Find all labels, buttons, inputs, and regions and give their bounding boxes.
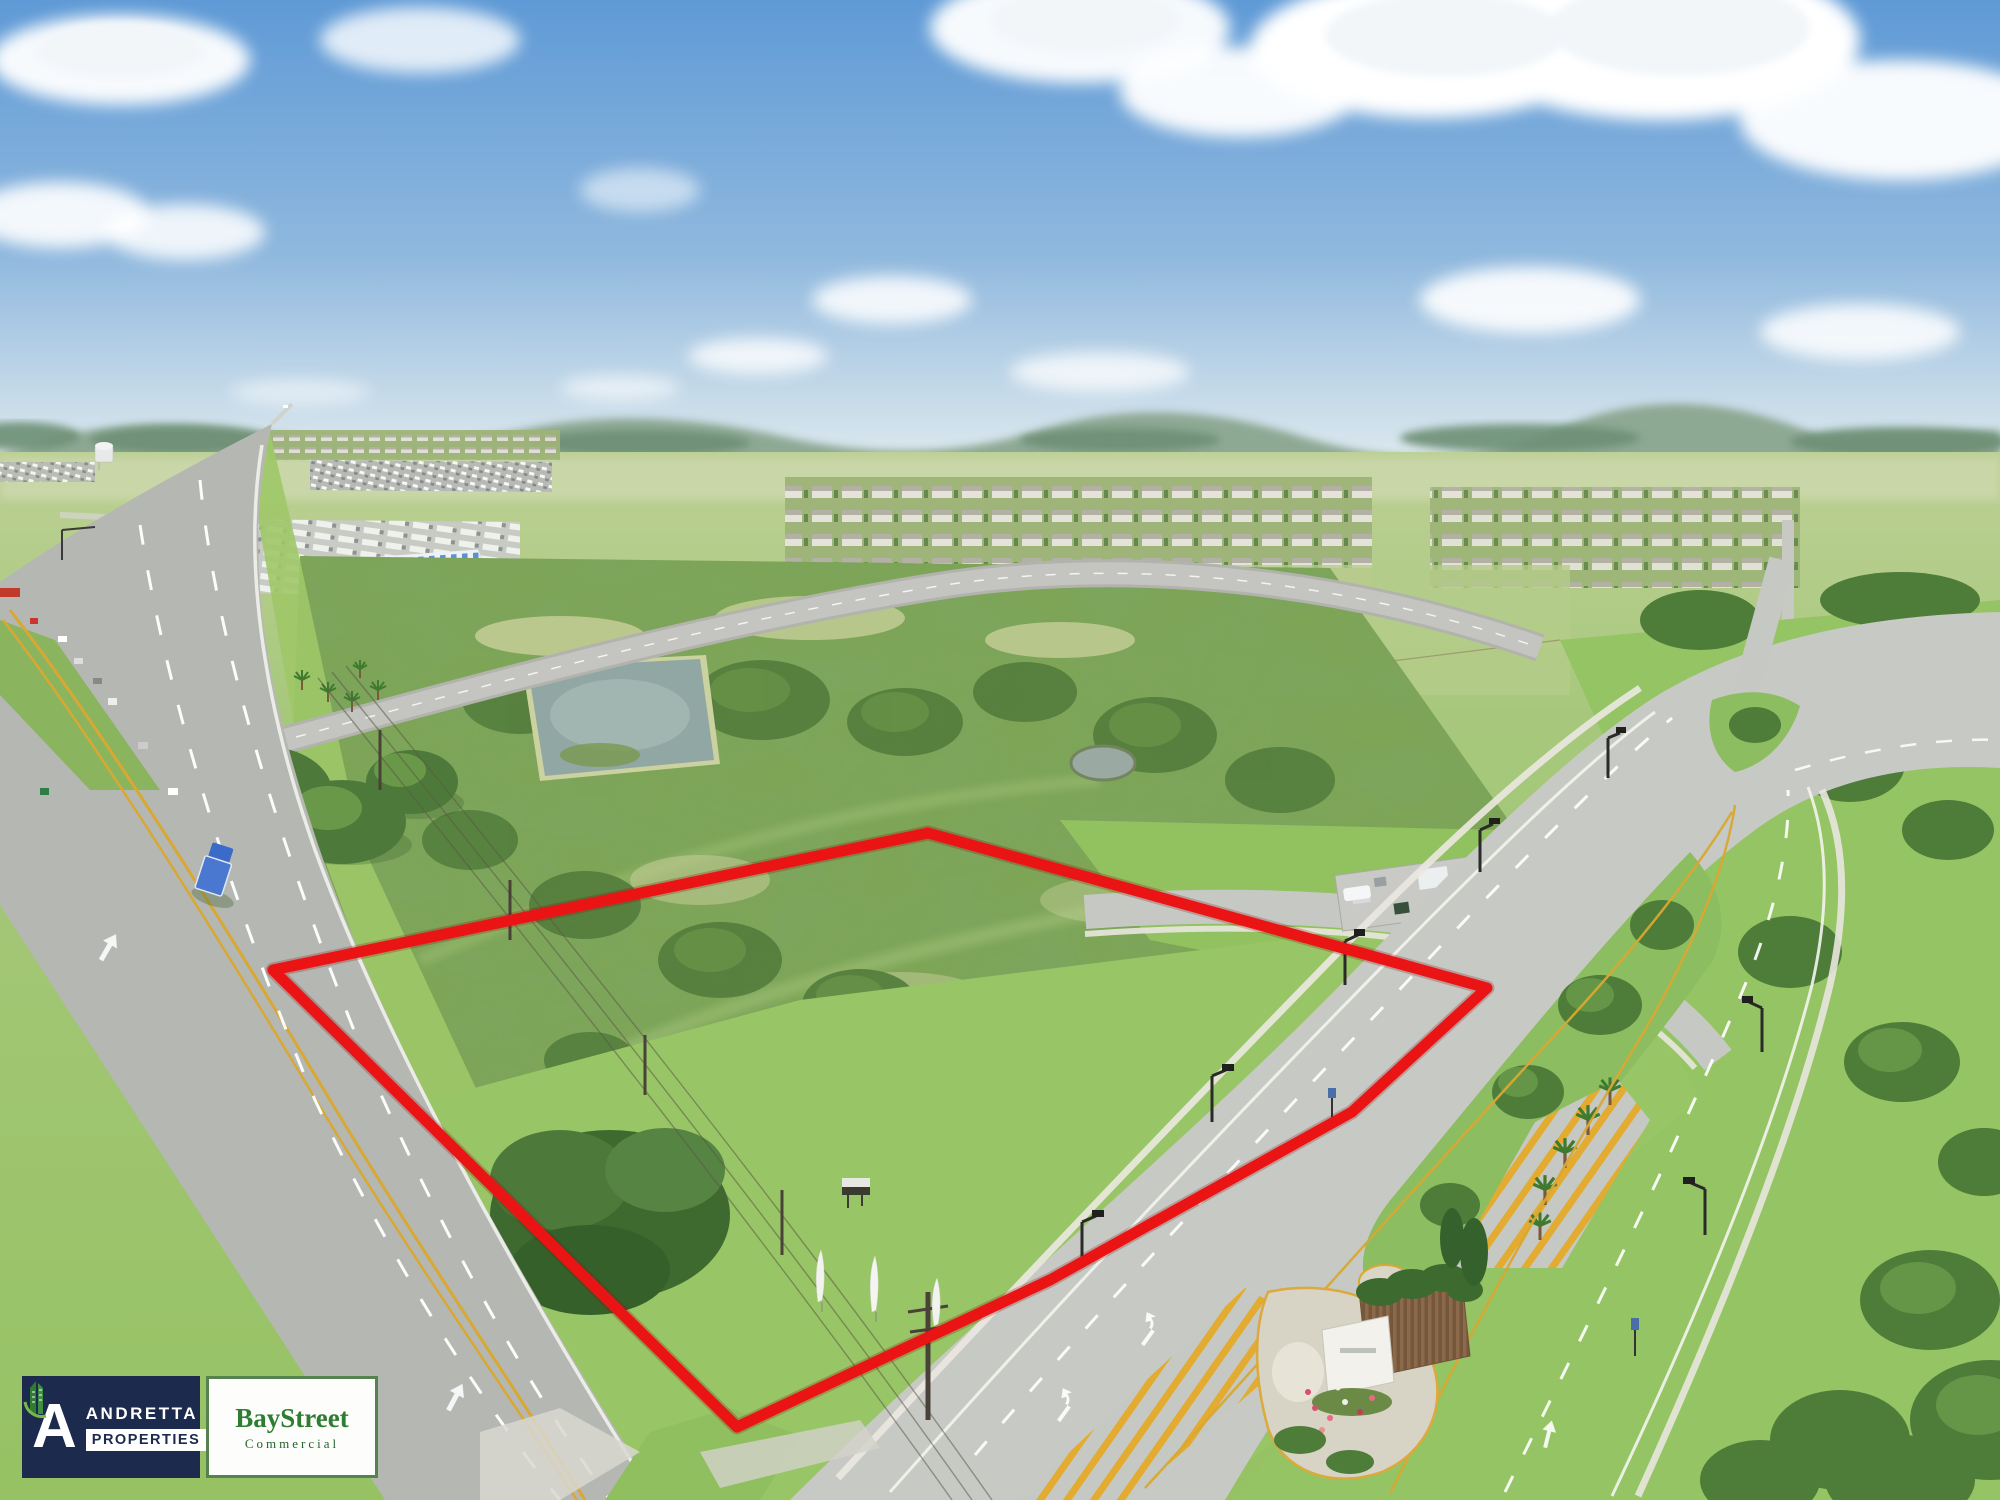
baystreet-subtitle: Commercial	[245, 1436, 339, 1452]
subdivision-center	[785, 477, 1372, 568]
building-icon	[22, 1376, 52, 1420]
andretta-subtitle: PROPERTIES	[86, 1429, 206, 1451]
baystreet-logo: BayStreet Commercial	[206, 1376, 378, 1478]
distant-subdivision-left	[268, 430, 560, 460]
water-tower	[95, 442, 113, 462]
baystreet-name: BayStreet	[235, 1403, 348, 1434]
monument-sign	[1322, 1316, 1394, 1396]
branding-bar: A ANDRETTA PROPERTIES BayStreet Commerci…	[22, 1376, 378, 1478]
aerial-scene	[0, 0, 2000, 1500]
small-pond	[1071, 746, 1135, 780]
distant-parking-lot-left	[0, 462, 95, 482]
mile-marker-sign	[40, 788, 49, 795]
aerial-photo: A ANDRETTA PROPERTIES BayStreet Commerci…	[0, 0, 2000, 1500]
large-parking-lot	[310, 460, 552, 492]
andretta-name: ANDRETTA	[86, 1404, 198, 1424]
sky	[0, 0, 2000, 460]
